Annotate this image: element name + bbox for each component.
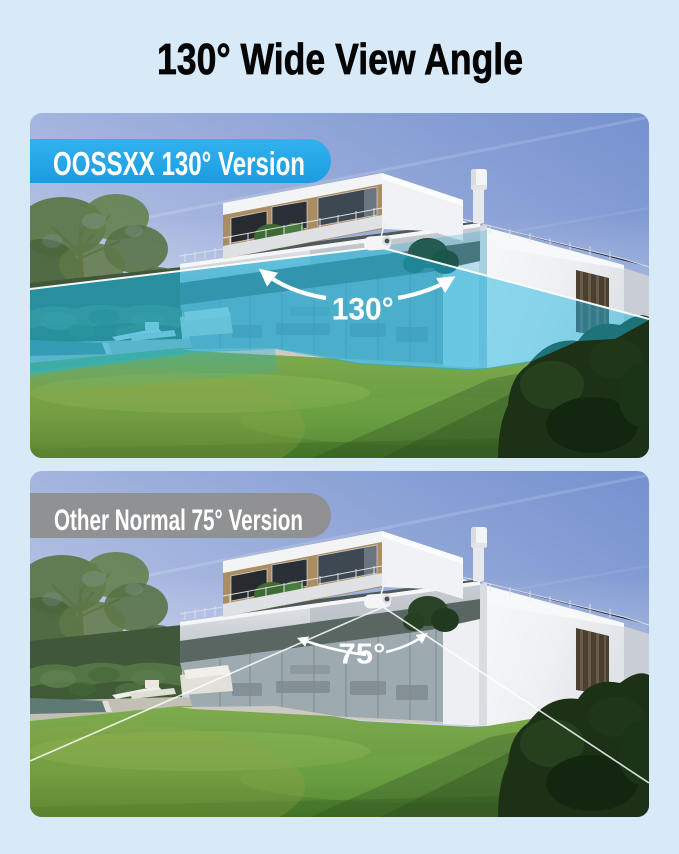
svg-text:130° Wide View Angle: 130° Wide View Angle: [157, 35, 523, 84]
svg-text:75°: 75°: [339, 639, 386, 671]
svg-text:130°: 130°: [332, 291, 394, 327]
svg-text:Other Normal 75° Version: Other Normal 75° Version: [54, 504, 303, 537]
svg-text:OOSSXX 130° Version: OOSSXX 130° Version: [53, 145, 305, 182]
